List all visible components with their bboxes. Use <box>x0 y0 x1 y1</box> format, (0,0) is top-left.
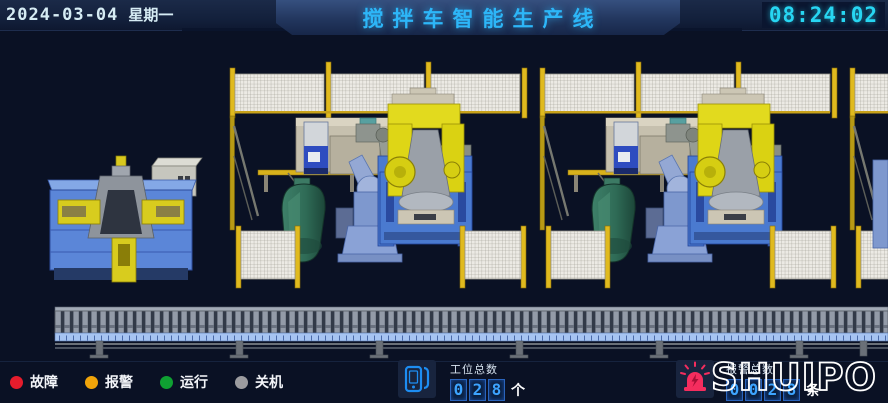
welding-cell-1 <box>230 62 527 288</box>
shuipo-logo: SHUIPO <box>700 355 888 401</box>
weekday-value: 星期一 <box>128 4 173 25</box>
alarm-status-dot <box>85 376 98 389</box>
station-counter-digits: 0 2 8 个 <box>450 379 525 401</box>
running-status-dot <box>160 376 173 389</box>
header-bar: 2024-03-04 星期一 搅拌车智能生产线 08:24:02 <box>0 0 888 31</box>
partial-machine-sliver <box>873 160 888 248</box>
shuipo-logo-text: SHUIPO <box>711 356 877 399</box>
conveyor-line <box>55 307 888 358</box>
welding-cell-2 <box>540 62 837 288</box>
scene-3d-view <box>0 30 888 363</box>
production-line-dashboard: 2024-03-04 星期一 搅拌车智能生产线 08:24:02 <box>0 0 888 403</box>
title-panel: 搅拌车智能生产线 <box>276 0 680 35</box>
legend-label: 关机 <box>255 372 283 392</box>
legend-item-alarm: 报警 <box>85 372 133 392</box>
page-title: 搅拌车智能生产线 <box>354 3 603 33</box>
legend-item-running: 运行 <box>160 372 208 392</box>
legend-item-shutdown: 关机 <box>235 372 283 392</box>
hmi-panel-icon <box>398 360 436 398</box>
fault-status-dot <box>10 376 23 389</box>
station-counter-tile <box>398 360 436 398</box>
clock-display: 08:24:02 <box>762 2 885 28</box>
digit: 0 <box>450 379 467 401</box>
date-display: 2024-03-04 星期一 <box>6 4 173 25</box>
fixture-station <box>48 156 202 282</box>
digit: 2 <box>469 379 486 401</box>
legend-label: 运行 <box>180 372 208 392</box>
station-counter-unit: 个 <box>511 379 525 401</box>
legend-item-fault: 故障 <box>10 372 58 392</box>
shutdown-status-dot <box>235 376 248 389</box>
digit: 8 <box>488 379 505 401</box>
status-legend: 故障 报警 运行 关机 <box>10 371 283 393</box>
station-counter-label: 工位总数 <box>450 361 525 377</box>
legend-label: 报警 <box>105 372 133 392</box>
legend-label: 故障 <box>30 372 58 392</box>
station-counter: 工位总数 0 2 8 个 <box>450 361 525 401</box>
date-value: 2024-03-04 <box>6 5 118 25</box>
